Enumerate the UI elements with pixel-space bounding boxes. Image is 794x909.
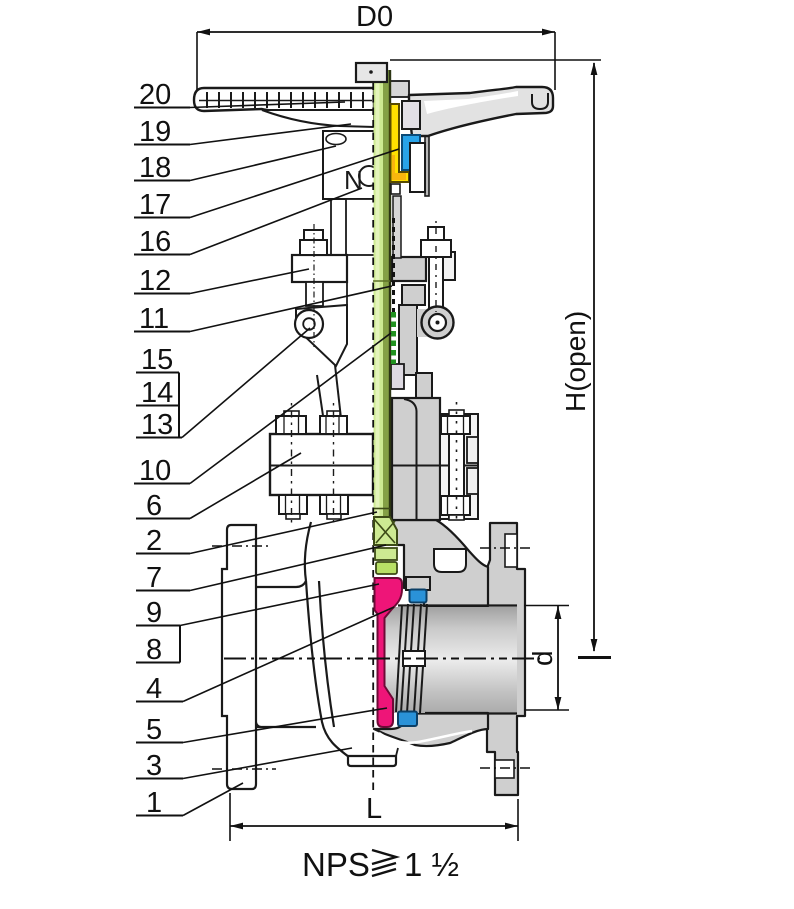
svg-text:11: 11: [139, 303, 169, 335]
svg-text:2: 2: [146, 525, 162, 557]
svg-text:4: 4: [146, 673, 162, 705]
svg-text:5: 5: [146, 714, 162, 746]
svg-text:14: 14: [141, 377, 173, 409]
svg-text:13: 13: [141, 409, 173, 441]
svg-text:1 ½: 1 ½: [404, 846, 459, 883]
svg-text:7: 7: [146, 562, 162, 594]
svg-text:19: 19: [139, 116, 171, 148]
svg-text:16: 16: [139, 226, 171, 258]
svg-text:3: 3: [146, 750, 162, 782]
svg-text:1: 1: [146, 787, 162, 819]
svg-text:18: 18: [139, 152, 171, 184]
svg-text:15: 15: [141, 344, 173, 376]
svg-text:D0: D0: [356, 1, 393, 33]
svg-text:L: L: [366, 793, 382, 825]
svg-text:17: 17: [139, 189, 171, 221]
svg-text:H(open): H(open): [560, 311, 591, 412]
svg-text:d: d: [527, 650, 558, 666]
svg-text:6: 6: [146, 490, 162, 522]
svg-text:8: 8: [146, 634, 162, 666]
svg-text:12: 12: [139, 265, 171, 297]
svg-text:9: 9: [146, 597, 162, 629]
svg-text:20: 20: [139, 79, 171, 111]
svg-text:NPS: NPS: [302, 846, 370, 883]
svg-text:10: 10: [139, 455, 171, 487]
